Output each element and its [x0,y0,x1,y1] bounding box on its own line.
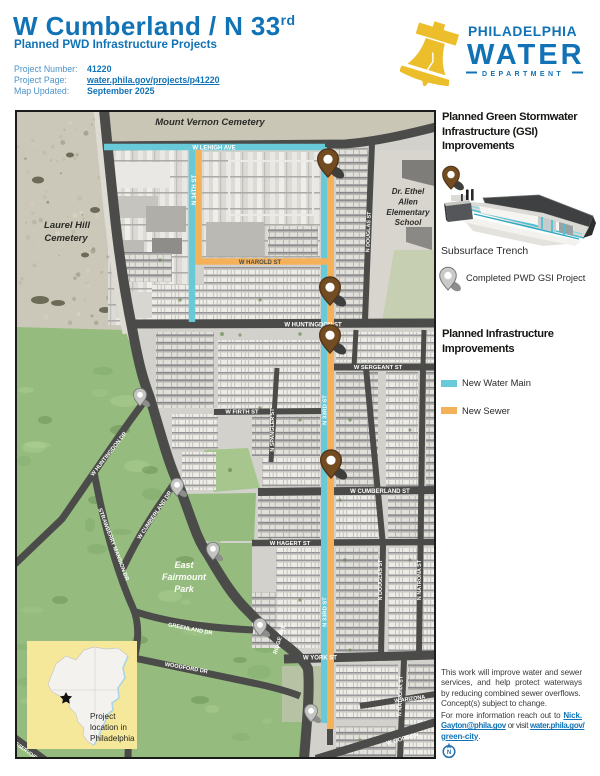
svg-text:W LEHIGH AVE: W LEHIGH AVE [192,145,235,151]
svg-text:WATER: WATER [467,39,585,71]
svg-text:N 33RD ST: N 33RD ST [323,395,329,425]
svg-text:W CUMBERLAND ST: W CUMBERLAND ST [350,489,410,495]
svg-text:Elementary: Elementary [386,208,430,217]
svg-text:East: East [174,560,194,570]
svg-text:DEPARTMENT: DEPARTMENT [482,71,564,78]
svg-text:N NATRONA ST: N NATRONA ST [417,559,423,600]
svg-text:Cemetery: Cemetery [44,233,88,244]
svg-text:N: N [447,750,451,756]
svg-text:W FIRTH ST: W FIRTH ST [225,410,259,416]
svg-text:School: School [395,218,422,227]
svg-text:Project: Project [90,712,116,721]
svg-text:N DOUGLAS ST: N DOUGLAS ST [378,559,384,600]
svg-text:N SPANGLER ST: N SPANGLER ST [270,408,276,452]
svg-text:Dr. Ethel: Dr. Ethel [392,187,425,196]
svg-text:location in: location in [90,723,127,732]
svg-text:Mount Vernon Cemetery: Mount Vernon Cemetery [155,117,265,128]
svg-text:N 33RD ST: N 33RD ST [323,597,329,627]
svg-text:Allen: Allen [397,198,418,207]
svg-text:W YORK ST: W YORK ST [303,655,337,661]
svg-text:PHILADELPHIA: PHILADELPHIA [468,24,577,39]
svg-text:Fairmount: Fairmount [162,572,207,582]
svg-text:Park: Park [174,584,195,594]
svg-text:W HAGERT ST: W HAGERT ST [270,541,311,547]
svg-text:W SERGEANT ST: W SERGEANT ST [354,365,403,371]
svg-text:Philadelphia: Philadelphia [90,734,135,743]
svg-text:N 34TH ST: N 34TH ST [192,175,198,205]
svg-text:Laurel Hill: Laurel Hill [44,220,90,231]
svg-text:W HAROLD ST: W HAROLD ST [239,260,282,266]
